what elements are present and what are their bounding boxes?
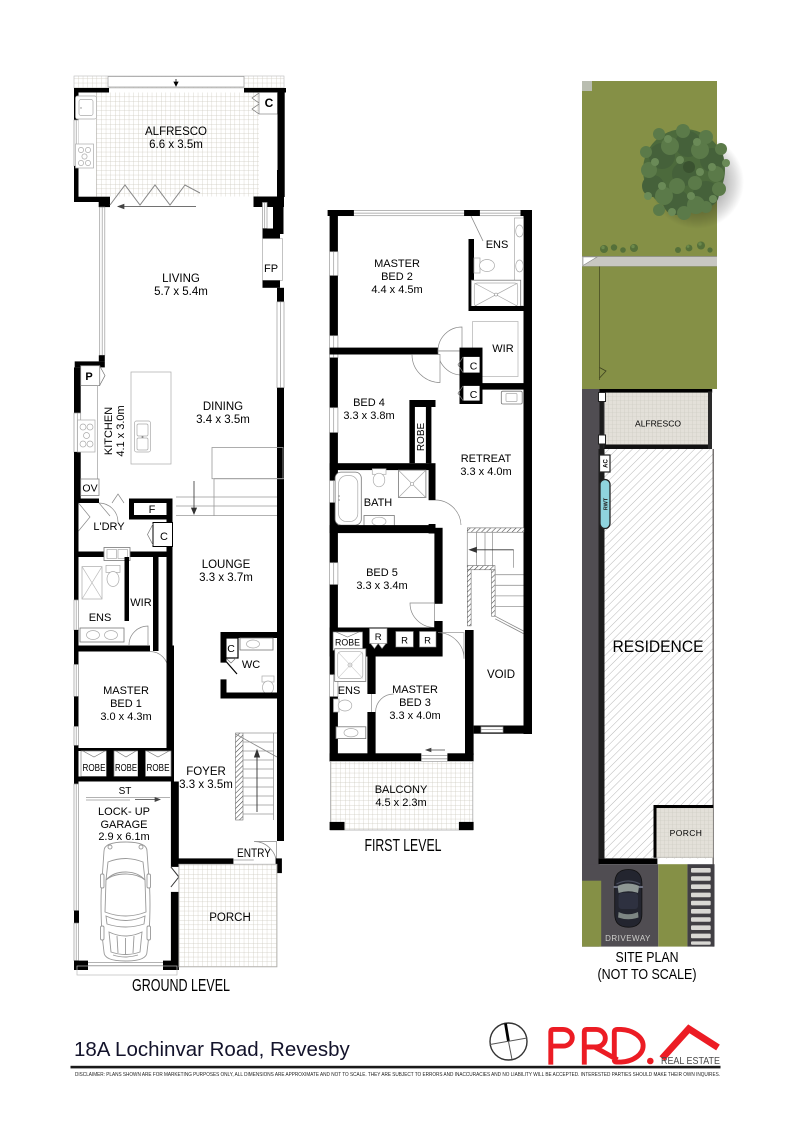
svg-text:DISCLAIMER: PLANS SHOWN ARE FO: DISCLAIMER: PLANS SHOWN ARE FOR MARKETIN… xyxy=(75,1072,720,1078)
svg-text:ROBE: ROBE xyxy=(147,763,170,774)
svg-text:BALCONY: BALCONY xyxy=(375,784,428,796)
svg-text:MASTER: MASTER xyxy=(374,258,420,270)
svg-text:BED 4: BED 4 xyxy=(353,397,385,409)
svg-text:LIVING: LIVING xyxy=(162,273,200,285)
svg-text:BED 2: BED 2 xyxy=(381,271,413,283)
svg-text:C: C xyxy=(265,96,274,110)
svg-text:18A Lochinvar Road, Revesby: 18A Lochinvar Road, Revesby xyxy=(74,1038,351,1061)
svg-text:BED 1: BED 1 xyxy=(110,698,142,710)
svg-text:LOUNGE: LOUNGE xyxy=(202,559,251,571)
svg-text:OV: OV xyxy=(82,483,97,495)
svg-text:C: C xyxy=(470,361,478,373)
svg-text:3.3 x 3.7m: 3.3 x 3.7m xyxy=(199,572,253,584)
svg-text:ENTRY: ENTRY xyxy=(237,848,271,860)
svg-text:LOCK- UP: LOCK- UP xyxy=(98,806,150,818)
svg-text:ENS: ENS xyxy=(486,239,509,251)
svg-text:3.3 x 4.0m: 3.3 x 4.0m xyxy=(460,466,511,478)
svg-text:MASTER: MASTER xyxy=(103,685,149,697)
svg-text:DINING: DINING xyxy=(203,401,243,413)
svg-text:KITCHEN: KITCHEN xyxy=(103,407,115,455)
svg-text:ROBE: ROBE xyxy=(416,423,427,452)
svg-text:ALFRESCO: ALFRESCO xyxy=(145,126,207,138)
svg-text:FIRST LEVEL: FIRST LEVEL xyxy=(365,835,442,855)
svg-text:ROBE: ROBE xyxy=(83,763,106,774)
svg-text:ROBE: ROBE xyxy=(115,763,137,774)
svg-text:C: C xyxy=(160,531,168,543)
svg-text:PORCH: PORCH xyxy=(209,912,251,924)
svg-text:3.4 x 3.5m: 3.4 x 3.5m xyxy=(196,414,250,426)
svg-text:WC: WC xyxy=(242,659,260,671)
svg-text:GARAGE: GARAGE xyxy=(100,819,147,831)
svg-text:BATH: BATH xyxy=(364,497,393,509)
svg-text:ALFRESCO: ALFRESCO xyxy=(635,419,681,429)
svg-text:R: R xyxy=(401,636,408,647)
svg-text:RESIDENCE: RESIDENCE xyxy=(613,638,704,656)
svg-text:ENS: ENS xyxy=(338,685,361,697)
svg-text:6.6 x 3.5m: 6.6 x 3.5m xyxy=(149,139,203,151)
svg-text:MASTER: MASTER xyxy=(392,684,438,696)
svg-text:PORCH: PORCH xyxy=(670,828,703,838)
svg-text:4.4 x 4.5m: 4.4 x 4.5m xyxy=(371,284,422,296)
svg-text:RWT: RWT xyxy=(603,497,609,510)
svg-text:WIR: WIR xyxy=(492,343,513,355)
svg-text:FOYER: FOYER xyxy=(186,766,226,778)
svg-text:WIR: WIR xyxy=(130,597,151,609)
svg-text:L'DRY: L'DRY xyxy=(93,521,125,533)
svg-text:3.3 x 4.0m: 3.3 x 4.0m xyxy=(389,710,440,722)
svg-text:BED 5: BED 5 xyxy=(366,567,398,579)
svg-text:R: R xyxy=(424,636,431,647)
svg-text:3.3 x 3.8m: 3.3 x 3.8m xyxy=(343,410,394,422)
svg-text:ROBE: ROBE xyxy=(335,638,360,649)
svg-text:3.3 x 3.4m: 3.3 x 3.4m xyxy=(356,580,407,592)
svg-text:3.3 x 3.5m: 3.3 x 3.5m xyxy=(179,779,233,791)
svg-text:AC: AC xyxy=(604,459,610,468)
svg-text:DRIVEWAY: DRIVEWAY xyxy=(605,934,651,943)
svg-text:R: R xyxy=(375,632,382,643)
svg-text:RETREAT: RETREAT xyxy=(461,453,512,465)
svg-text:(NOT TO SCALE): (NOT TO SCALE) xyxy=(598,967,697,983)
svg-text:P: P xyxy=(85,371,92,383)
svg-text:GROUND LEVEL: GROUND LEVEL xyxy=(132,975,230,995)
svg-text:ENS: ENS xyxy=(89,612,112,624)
svg-text:VOID: VOID xyxy=(487,669,515,681)
svg-text:5.7 x 5.4m: 5.7 x 5.4m xyxy=(154,286,208,298)
svg-text:2.9 x 6.1m: 2.9 x 6.1m xyxy=(98,831,149,843)
svg-text:BED 3: BED 3 xyxy=(399,697,431,709)
svg-text:4.5 x 2.3m: 4.5 x 2.3m xyxy=(375,797,426,809)
svg-text:C: C xyxy=(470,389,478,401)
svg-text:REAL ESTATE: REAL ESTATE xyxy=(661,1056,720,1067)
svg-text:SITE PLAN: SITE PLAN xyxy=(616,950,679,966)
svg-text:3.0 x 4.3m: 3.0 x 4.3m xyxy=(100,711,151,723)
svg-text:C: C xyxy=(227,643,235,655)
svg-text:ST: ST xyxy=(119,786,132,797)
svg-text:FP: FP xyxy=(264,263,278,275)
svg-text:F: F xyxy=(149,504,156,516)
svg-text:4.1 x 3.0m: 4.1 x 3.0m xyxy=(115,405,127,456)
